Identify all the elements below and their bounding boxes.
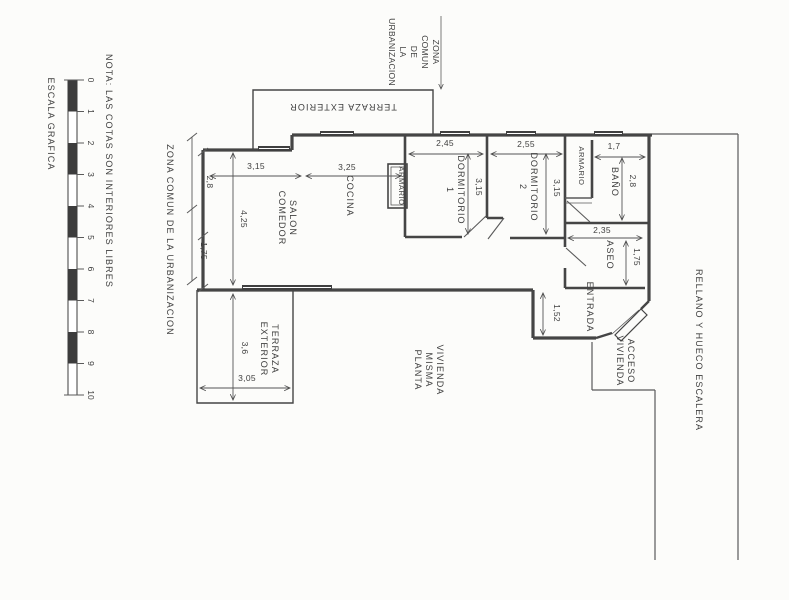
zona-comun-top-line: LA [398, 47, 408, 58]
dim-dormitorio2-fondo: 3,15 [546, 154, 562, 234]
dim-dormitorio1-fondo: 3,15 [468, 154, 484, 234]
note-text: NOTA: LAS COTAS SON INTERIORES LIBRES [104, 54, 114, 288]
label-salon-comedor: SALON COMEDOR [277, 191, 298, 246]
svg-text:2,35: 2,35 [593, 225, 611, 235]
svg-text:2,8: 2,8 [205, 176, 215, 189]
scale-tick-label: 7 [86, 298, 96, 303]
scale-tick-label: 3 [86, 172, 96, 177]
svg-text:COMEDOR: COMEDOR [277, 191, 287, 246]
svg-text:1,75: 1,75 [632, 248, 642, 266]
label-armario-pasillo: ARMARIO [577, 146, 586, 185]
window-symbol [440, 131, 470, 136]
dim-terraza-fondo: 3,6 [233, 294, 250, 400]
dim-salon-fondo: 4,25 [233, 153, 249, 285]
zona-comun-top-line: ZONA [431, 40, 441, 65]
dim-dormitorio2-ancho: 2,55 [491, 139, 562, 154]
dim-salon-ancho: 3,15 [210, 161, 301, 176]
svg-text:TERRAZA: TERRAZA [270, 324, 280, 374]
dim-bano-fondo: 2,8 [622, 158, 638, 220]
window-symbol [594, 131, 623, 136]
svg-text:3,15: 3,15 [474, 178, 484, 196]
dim-bano-ancho: 1,7 [595, 141, 645, 157]
dim-aseo-fondo: 1,75 [626, 241, 642, 285]
svg-text:PLANTA: PLANTA [413, 350, 423, 391]
label-cocina: COCINA [345, 175, 355, 217]
label-armario-dormitorio1: ARMARIO [397, 166, 406, 205]
svg-text:2,45: 2,45 [436, 138, 454, 148]
svg-text:SALON: SALON [288, 200, 298, 236]
dim-dormitorio1-ancho: 2,45 [409, 138, 483, 154]
label-rellano: RELLANO Y HUECO ESCALERA [694, 269, 704, 431]
window-symbol [242, 285, 332, 290]
zona-comun-top-line: DE [409, 46, 419, 58]
svg-text:2: 2 [518, 184, 528, 190]
svg-text:2,8: 2,8 [628, 175, 638, 188]
scale-tick-label: 10 [86, 390, 96, 400]
door-swing [488, 218, 504, 239]
scale-tick-label: 5 [86, 235, 96, 240]
zona-comun-top: ZONA COMUN DE LA URBANIZACION [387, 16, 441, 89]
floor-plan: ESCALA GRAFICA 0 1 2 3 4 5 6 7 8 9 10 NO… [0, 0, 789, 600]
scale-tick-label: 2 [86, 141, 96, 146]
dim-izquierda-superior: 2,8 [198, 148, 215, 240]
scale-tick-labels: 0 1 2 3 4 5 6 7 8 9 10 [86, 78, 96, 400]
label-terraza-exterior: TERRAZA EXTERIOR [259, 322, 280, 377]
zona-comun-top-line: COMUN [420, 35, 430, 69]
scale-tick-label: 0 [86, 78, 96, 83]
dim-entrada-fondo: 1,52 [543, 293, 562, 335]
svg-text:3,6: 3,6 [240, 342, 250, 355]
dim-cocina-ancho: 3,25 [306, 162, 401, 176]
zona-comun-left-label: ZONA COMUN DE LA URBANIZACION [165, 144, 175, 335]
svg-text:EXTERIOR: EXTERIOR [259, 322, 269, 377]
window-symbol [258, 146, 290, 151]
label-dormitorio-2: DORMITORIO 2 [518, 152, 539, 221]
svg-text:1,52: 1,52 [552, 304, 562, 322]
scale-title: ESCALA GRAFICA [46, 78, 56, 171]
svg-text:DORMITORIO: DORMITORIO [456, 155, 466, 224]
svg-text:1,7: 1,7 [608, 141, 621, 151]
door-swing [464, 216, 486, 237]
label-aseo: ASEO [605, 240, 615, 269]
svg-text:DORMITORIO: DORMITORIO [529, 152, 539, 221]
svg-text:1: 1 [445, 187, 455, 193]
door-swing [567, 201, 590, 222]
zona-comun-top-line: URBANIZACION [387, 18, 397, 86]
door-swing [566, 248, 586, 266]
scale-tick-label: 6 [86, 267, 96, 272]
label-dormitorio-1: DORMITORIO 1 [445, 155, 466, 224]
label-bano: BAÑO [610, 167, 620, 197]
label-entrada: ENTRADA [585, 282, 595, 333]
zona-comun-left: ZONA COMUN DE LA URBANIZACION [165, 133, 197, 336]
svg-text:3,05: 3,05 [238, 373, 256, 383]
svg-text:ACCESO: ACCESO [626, 339, 636, 384]
label-acceso-vivienda: ACCESO VIVIENDA [615, 336, 636, 387]
svg-text:3,25: 3,25 [338, 162, 356, 172]
dim-terraza-ancho: 3,05 [200, 373, 290, 388]
window-symbol [320, 131, 354, 136]
scale-tick-label: 9 [86, 361, 96, 366]
svg-text:VIVIENDA: VIVIENDA [435, 345, 445, 396]
scale-bar [64, 80, 84, 395]
scale-tick-label: 4 [86, 204, 96, 209]
graphic-scale: ESCALA GRAFICA 0 1 2 3 4 5 6 7 8 9 10 [46, 78, 96, 400]
label-vivienda-misma-planta: VIVIENDA MISMA PLANTA [413, 345, 445, 396]
scale-tick-label: 1 [86, 109, 96, 114]
dim-aseo-ancho: 2,35 [568, 225, 642, 238]
window-symbol [506, 131, 536, 136]
svg-text:1,75: 1,75 [199, 242, 209, 260]
svg-text:3,15: 3,15 [552, 179, 562, 197]
svg-text:VIVIENDA: VIVIENDA [615, 336, 625, 387]
svg-text:4,25: 4,25 [239, 210, 249, 228]
svg-text:3,15: 3,15 [247, 161, 265, 171]
floor-plan-sheet: ESCALA GRAFICA 0 1 2 3 4 5 6 7 8 9 10 NO… [0, 0, 789, 600]
scale-tick-label: 8 [86, 330, 96, 335]
room-labels: TERRAZA EXTERIOR SALON COMEDOR COCINA AR… [259, 102, 704, 431]
svg-text:2,55: 2,55 [517, 139, 535, 149]
label-terraza-superior: TERRAZA EXTERIOR [289, 102, 397, 112]
svg-text:MISMA: MISMA [424, 352, 434, 387]
